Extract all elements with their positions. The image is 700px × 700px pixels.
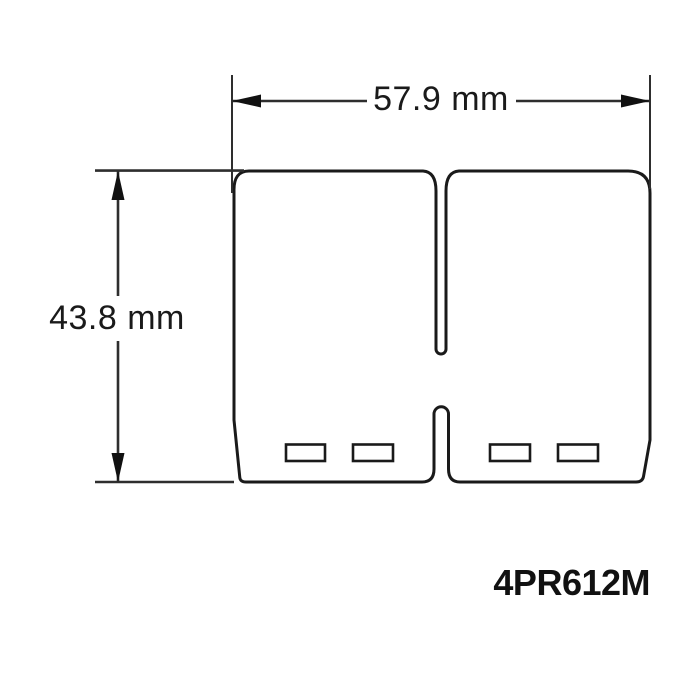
height-arrowhead-bottom-icon [112, 453, 125, 482]
width-arrowhead-right-icon [621, 95, 650, 108]
part-hole-left-1 [286, 445, 325, 462]
width-dimension: 57.9 mm [232, 75, 650, 193]
width-arrowhead-left-icon [232, 95, 261, 108]
height-dimension: 43.8 mm [49, 171, 244, 482]
height-arrowhead-top-icon [112, 171, 125, 200]
width-dimension-label: 57.9 mm [373, 80, 509, 118]
part-outline-group [234, 171, 650, 482]
reed-petal-dimension-diagram: 57.9 mm 43.8 mm 4PR612M [0, 0, 700, 700]
part-number-label: 4PR612M [493, 562, 650, 603]
technical-drawing-canvas: 57.9 mm 43.8 mm 4PR612M [0, 0, 700, 700]
part-hole-left-2 [353, 445, 393, 462]
part-outline [234, 171, 650, 482]
part-hole-right-1 [490, 445, 530, 462]
height-dimension-label: 43.8 mm [49, 299, 185, 337]
part-hole-right-2 [558, 445, 598, 462]
